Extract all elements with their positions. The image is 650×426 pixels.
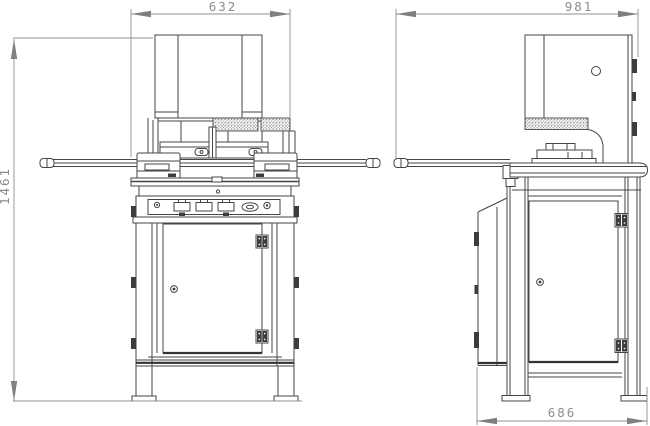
head-latch-low: [632, 122, 637, 136]
arrowhead-1461-top: [11, 39, 17, 59]
cabinet-leg-front-left: [136, 366, 152, 396]
cabinet-side: [474, 177, 647, 401]
heater-hatch-side: [525, 118, 588, 130]
leg-foot-side-left: [502, 396, 530, 402]
door-hinge-bottom-front: [256, 330, 268, 343]
leg-foot-front-left: [132, 396, 156, 401]
side-panel-slope: [478, 198, 507, 212]
front-view: [40, 35, 380, 401]
center-fixture: [212, 177, 222, 182]
arrowhead-686-right: [627, 418, 647, 424]
support-column-side-right: [625, 177, 640, 396]
technical-drawing-canvas: 632 981 1461 686: [0, 0, 650, 426]
slide-rails-side: [394, 159, 510, 168]
arrowhead-981-right: [618, 11, 638, 17]
dim-label-981: 981: [565, 0, 594, 14]
control-panel: [133, 196, 297, 223]
latch-left-low: [131, 338, 136, 349]
arrowhead-686-left: [477, 418, 497, 424]
panel-ledge: [133, 217, 297, 223]
press-head-front: [155, 35, 262, 118]
side-view: [394, 35, 648, 401]
latch-side-mid: [475, 285, 479, 294]
mold-tray-side: [532, 144, 596, 164]
head-and-arm-outline: [525, 35, 632, 163]
bottom-rail-side: [528, 373, 622, 377]
door-hinge-bottom-side: [615, 339, 628, 353]
latch-left-top: [131, 206, 136, 217]
dim-label-1461: 1461: [0, 167, 12, 205]
door-hinge-top-front: [256, 235, 268, 248]
heater-hatch-front-left: [213, 118, 258, 131]
latch-right-top: [294, 206, 299, 217]
latch-left-mid: [131, 277, 136, 288]
clamp-right: [254, 153, 297, 179]
arrowhead-632-left: [131, 11, 151, 17]
cabinet-side-panel: [478, 207, 497, 365]
slide-rails-front: [40, 159, 380, 168]
latch-right-low: [294, 338, 299, 349]
leg-foot-side-right: [621, 396, 647, 402]
latch-side-low: [474, 332, 479, 348]
leg-foot-front-right: [274, 396, 298, 401]
table-top-front: [131, 177, 299, 196]
head-latch-top: [632, 59, 637, 73]
door-hinge-top-side: [615, 214, 628, 228]
latch-side-top: [474, 232, 479, 246]
dim-label-632: 632: [209, 0, 238, 14]
head-latch-mid: [633, 92, 637, 101]
panel-recess: [148, 200, 280, 215]
cabinet-front: [131, 206, 299, 401]
dim-label-686: 686: [548, 405, 577, 420]
latch-right-mid: [294, 277, 299, 288]
arrowhead-1461-bottom: [11, 381, 17, 401]
two-view-machine-drawing: 632 981 1461 686: [0, 0, 650, 426]
cabinet-leg-front-right: [278, 366, 294, 396]
tray-handle-left: [195, 149, 208, 156]
arrowhead-632-right: [270, 11, 290, 17]
press-head-side: [525, 35, 637, 163]
arrowhead-981-left: [396, 11, 416, 17]
clamp-left: [137, 153, 180, 179]
heater-hatch-front-right: [261, 118, 290, 131]
cabinet-door-side: [529, 201, 618, 362]
